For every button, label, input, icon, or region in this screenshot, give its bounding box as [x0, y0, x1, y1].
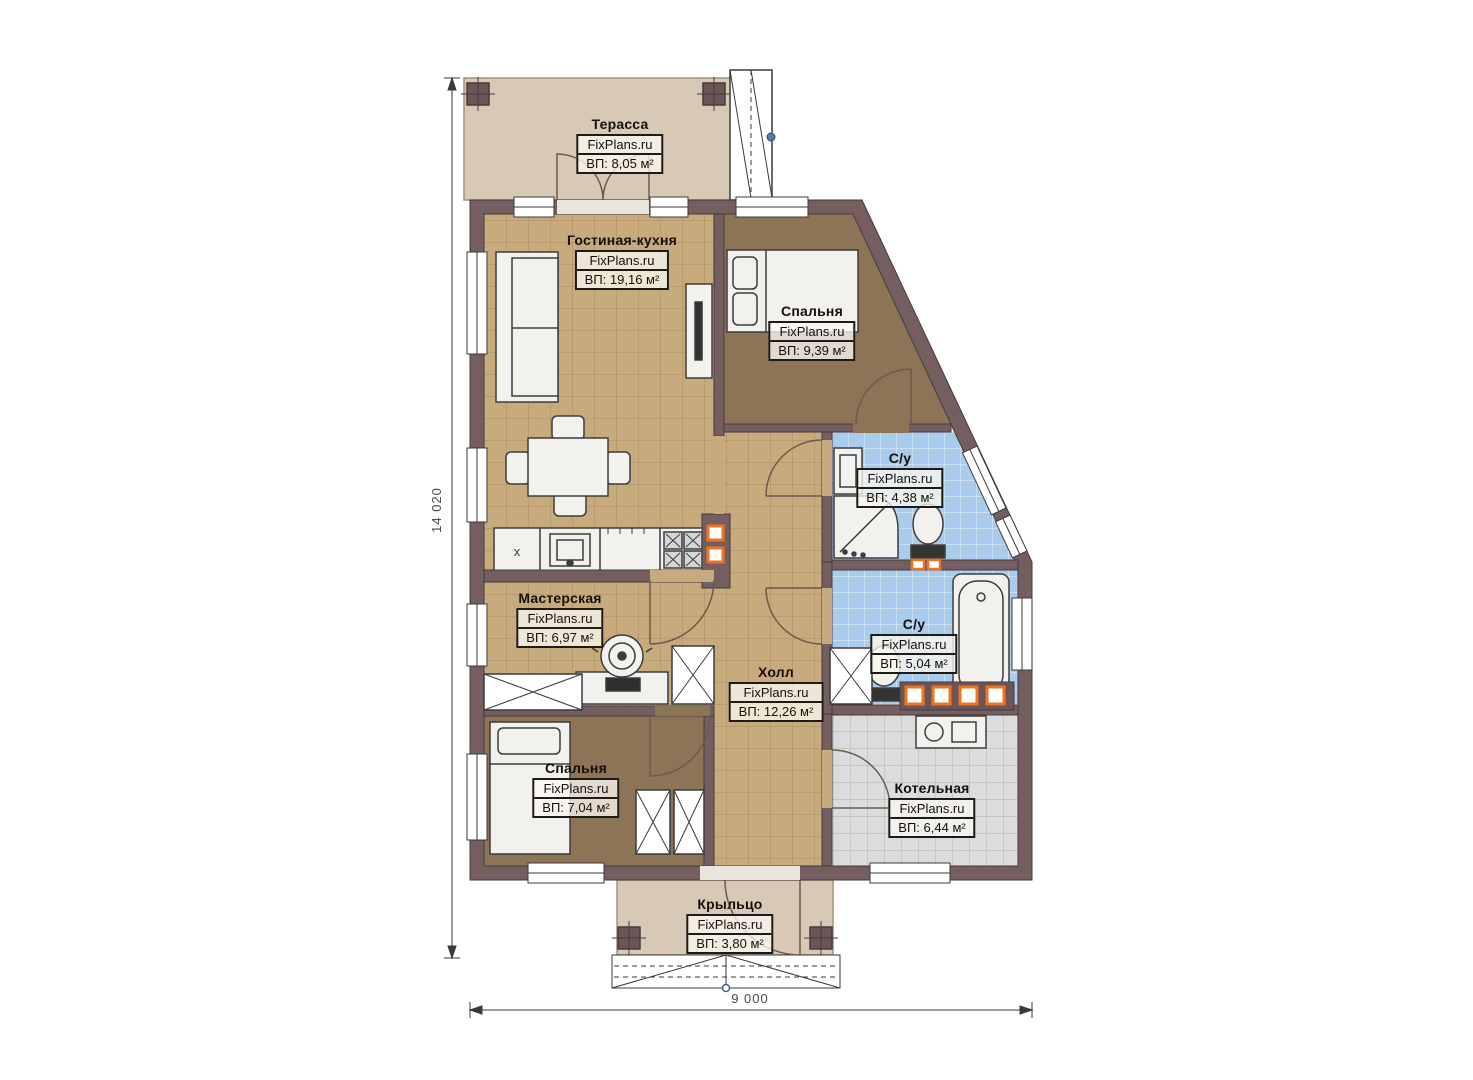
floor-hall	[714, 432, 822, 866]
window	[467, 604, 487, 666]
window	[467, 754, 487, 840]
window	[736, 197, 808, 217]
brand-text: FixPlans.ru	[578, 136, 661, 155]
tv-screen	[695, 302, 702, 360]
window	[528, 863, 604, 883]
room-area: ВП: 6,97 м²	[518, 629, 601, 646]
dimension-width-label: 9 000	[731, 991, 769, 1006]
dimension-vertical: 14 020	[429, 78, 460, 958]
pillow	[498, 728, 560, 754]
chair	[552, 416, 584, 440]
room-info-box: FixPlans.ru ВП: 19,16 м²	[575, 250, 670, 290]
dimension-height-label: 14 020	[429, 487, 444, 533]
sofa	[496, 252, 558, 402]
ladder-node	[767, 133, 775, 141]
room-info-box: FixPlans.ru ВП: 8,05 м²	[576, 134, 663, 174]
room-area: ВП: 7,04 м²	[534, 799, 617, 816]
brand-text: FixPlans.ru	[688, 916, 771, 935]
room-label-workshop: Мастерская FixPlans.ru ВП: 6,97 м²	[516, 590, 603, 648]
room-area: ВП: 19,16 м²	[577, 271, 668, 288]
dining-table	[528, 438, 608, 496]
room-info-box: FixPlans.ru ВП: 12,26 м²	[729, 682, 824, 722]
porch-steps	[612, 955, 840, 992]
boiler-unit	[916, 716, 986, 748]
room-name: Терасса	[592, 116, 649, 132]
wall-vent	[928, 560, 940, 569]
room-area: ВП: 3,80 м²	[688, 935, 771, 952]
pillow	[733, 293, 757, 325]
wardrobe	[674, 790, 704, 854]
room-name: С/у	[889, 450, 911, 466]
wall	[714, 214, 724, 436]
room-name: С/у	[903, 616, 925, 632]
window	[1012, 598, 1032, 670]
room-label-boiler-room: Котельная FixPlans.ru ВП: 6,44 м²	[888, 780, 975, 838]
wall	[724, 424, 951, 432]
brand-text: FixPlans.ru	[858, 470, 941, 489]
window	[467, 448, 487, 522]
wardrobe	[636, 790, 670, 854]
pillow	[733, 257, 757, 289]
window	[650, 197, 688, 217]
shaft	[672, 646, 714, 704]
floor-plan-page: x 14 020 9 000 Терасса FixPlans.ru ВП: 8…	[0, 0, 1473, 1080]
window	[467, 252, 487, 354]
room-label-bedroom-top: Спальня FixPlans.ru ВП: 9,39 м²	[768, 303, 855, 361]
kitchen-counter	[494, 528, 706, 572]
kitchen-cabinet-mark: x	[514, 544, 521, 559]
room-info-box: FixPlans.ru ВП: 3,80 м²	[686, 914, 773, 954]
room-name: Холл	[758, 664, 794, 680]
bathtub	[953, 574, 1009, 700]
window	[870, 863, 950, 883]
wardrobe	[484, 674, 582, 710]
room-name: Крыльцо	[697, 896, 762, 912]
room-area: ВП: 9,39 м²	[770, 342, 853, 359]
laptop	[606, 678, 640, 691]
wall-vent	[912, 560, 924, 569]
brand-text: FixPlans.ru	[770, 323, 853, 342]
brand-text: FixPlans.ru	[731, 684, 822, 703]
kitchen-sink	[550, 534, 590, 566]
room-label-porch: Крыльцо FixPlans.ru ВП: 3,80 м²	[686, 896, 773, 954]
brand-text: FixPlans.ru	[518, 610, 601, 629]
fireplace-vent	[708, 548, 723, 562]
room-label-bathroom-bottom: С/у FixPlans.ru ВП: 5,04 м²	[870, 616, 957, 674]
room-label-terrace: Терасса FixPlans.ru ВП: 8,05 м²	[576, 116, 663, 174]
vanity-strip	[900, 682, 1014, 710]
chair	[606, 452, 630, 484]
room-label-bathroom-top: С/у FixPlans.ru ВП: 4,38 м²	[856, 450, 943, 508]
dimension-horizontal: 9 000	[470, 991, 1032, 1018]
room-area: ВП: 12,26 м²	[731, 703, 822, 720]
stair-ladder	[730, 70, 775, 200]
room-label-hall: Холл FixPlans.ru ВП: 12,26 м²	[729, 664, 824, 722]
room-area: ВП: 4,38 м²	[858, 489, 941, 506]
brand-text: FixPlans.ru	[534, 780, 617, 799]
chair	[506, 452, 530, 484]
steps-center-node	[723, 985, 730, 992]
threshold-porch-door	[700, 866, 800, 880]
room-info-box: FixPlans.ru ВП: 6,97 м²	[516, 608, 603, 648]
room-name: Гостиная-кухня	[567, 232, 677, 248]
brand-text: FixPlans.ru	[890, 800, 973, 819]
room-name: Спальня	[545, 760, 607, 776]
brand-text: FixPlans.ru	[872, 636, 955, 655]
room-info-box: FixPlans.ru ВП: 4,38 м²	[856, 468, 943, 508]
room-info-box: FixPlans.ru ВП: 5,04 м²	[870, 634, 957, 674]
room-area: ВП: 5,04 м²	[872, 655, 955, 672]
room-info-box: FixPlans.ru ВП: 9,39 м²	[768, 321, 855, 361]
room-name: Мастерская	[518, 590, 601, 606]
room-info-box: FixPlans.ru ВП: 6,44 м²	[888, 798, 975, 838]
room-area: ВП: 6,44 м²	[890, 819, 973, 836]
window	[514, 197, 554, 217]
room-name: Спальня	[781, 303, 843, 319]
threshold-terrace-door	[557, 200, 649, 214]
room-info-box: FixPlans.ru ВП: 7,04 м²	[532, 778, 619, 818]
brand-text: FixPlans.ru	[577, 252, 668, 271]
tv-console	[686, 284, 712, 378]
room-name: Котельная	[894, 780, 969, 796]
shaft	[830, 648, 872, 704]
fireplace-vent	[708, 526, 723, 540]
toilet	[911, 504, 945, 558]
room-label-bedroom-bottom: Спальня FixPlans.ru ВП: 7,04 м²	[532, 760, 619, 818]
room-area: ВП: 8,05 м²	[578, 155, 661, 172]
room-label-living-kitchen: Гостиная-кухня FixPlans.ru ВП: 19,16 м²	[567, 232, 677, 290]
